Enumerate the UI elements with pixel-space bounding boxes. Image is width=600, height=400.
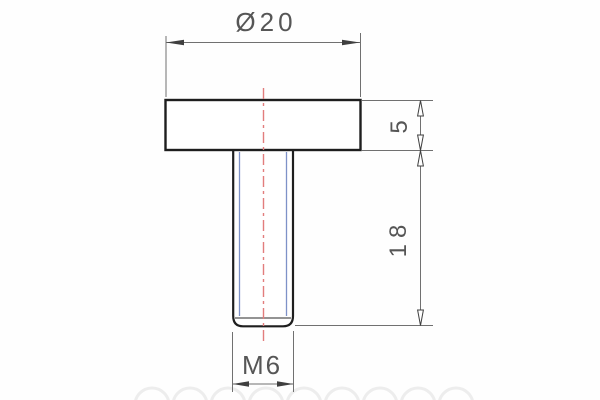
watermark-circle (325, 388, 359, 400)
arrow-down-icon (418, 135, 424, 151)
watermark-circle (363, 388, 397, 400)
arrow-left-icon (166, 40, 184, 45)
technical-drawing: Ø20 5 18 M6 (0, 0, 600, 400)
watermark-circle (173, 388, 207, 400)
arrow-down-icon (418, 310, 424, 326)
head-thickness-dimension-label: 5 (388, 120, 412, 133)
watermark-circle (401, 388, 435, 400)
watermark-circle (287, 388, 321, 400)
watermark-circle (249, 388, 283, 400)
watermark-circle (211, 388, 245, 400)
arrow-up-icon (418, 151, 424, 167)
thread-dimension-label: M6 (242, 352, 282, 378)
shank-length-dimension-label: 18 (387, 219, 411, 258)
watermark (135, 388, 473, 400)
arrow-right-icon (277, 381, 294, 387)
arrow-left-icon (233, 381, 250, 387)
drawing-canvas (0, 0, 600, 400)
dimension-lines (166, 33, 433, 392)
watermark-circle (135, 388, 169, 400)
diameter-dimension-label: Ø20 (235, 9, 296, 35)
arrow-up-icon (418, 101, 424, 117)
watermark-circle (439, 388, 473, 400)
arrow-right-icon (342, 40, 360, 45)
